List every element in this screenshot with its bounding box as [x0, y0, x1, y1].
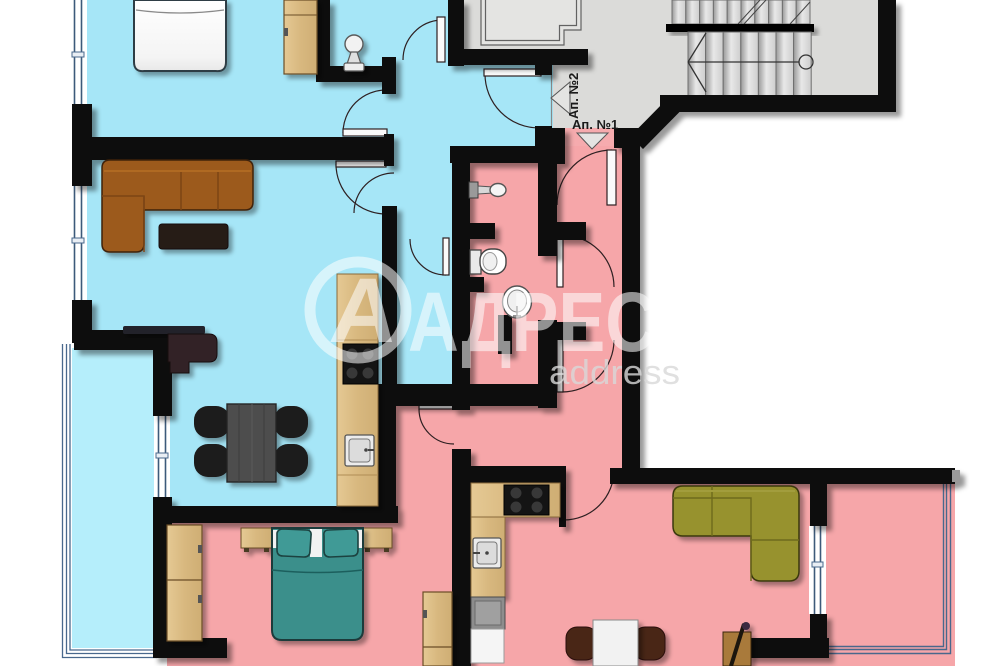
svg-text:Ап. №1: Ап. №1 [572, 117, 618, 132]
svg-text:Ап. №2: Ап. №2 [566, 73, 581, 119]
svg-text:address: address [549, 354, 680, 392]
svg-text:А: А [326, 258, 403, 362]
